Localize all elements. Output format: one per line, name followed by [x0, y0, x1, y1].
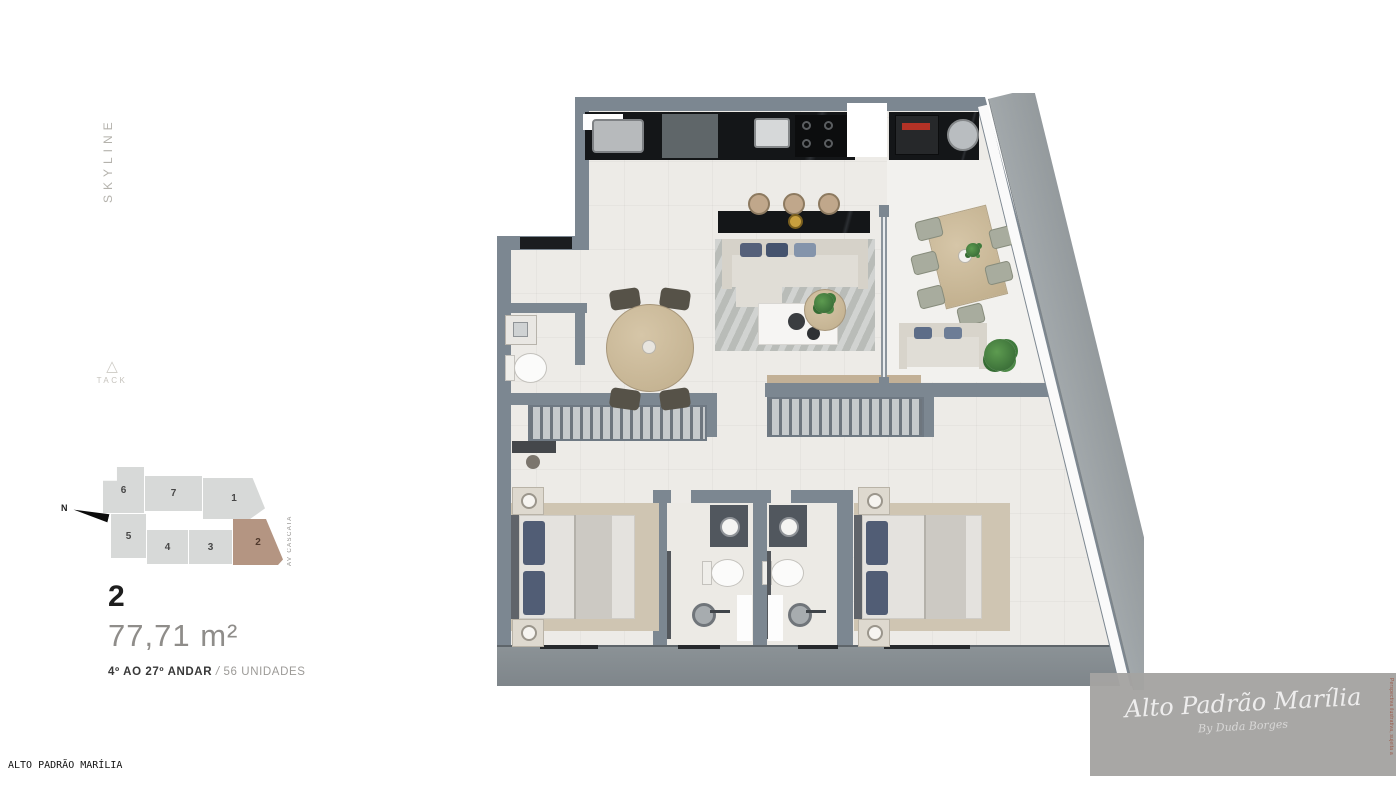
keyplan-unit-3-label: 3 — [208, 542, 214, 553]
bed-pillow — [866, 571, 888, 615]
desk — [512, 441, 556, 453]
bar-stool — [818, 193, 840, 215]
unit-area-value: 77,71 — [108, 618, 191, 653]
loveseat-armrest — [899, 323, 907, 369]
shower-glass — [667, 551, 671, 639]
window — [884, 645, 970, 649]
glass-partition — [881, 213, 887, 383]
burner-icon — [824, 139, 833, 148]
kitchen-cabinet — [662, 114, 718, 158]
bed-headboard — [511, 515, 519, 619]
wall-post — [879, 377, 889, 385]
oven — [895, 115, 939, 155]
lavabo-basin — [513, 322, 528, 337]
unit-area-unit: m² — [200, 618, 238, 653]
keyplan-unit-7: 7 — [145, 476, 202, 511]
disclaimer-vertical-text: Perspectiva ilustrativa, sujeita a alter… — [1387, 678, 1394, 772]
keyplan-unit-4: 4 — [147, 530, 188, 564]
street-label: AV CASCATA — [287, 494, 293, 566]
sink-bowl — [720, 517, 740, 537]
toilet — [514, 353, 547, 383]
lamp-icon — [867, 493, 883, 509]
wall-left — [497, 236, 511, 645]
separator: / — [216, 666, 220, 678]
floor-range: 4º AO 27º ANDAR — [108, 666, 212, 678]
burner-icon — [802, 121, 811, 130]
toilet — [711, 559, 744, 587]
wardrobe-closet — [767, 397, 924, 437]
unit-area: 77,71 m² — [108, 619, 368, 653]
window — [847, 103, 887, 157]
keyplan-unit-5: 5 — [111, 514, 146, 558]
compass-north-label: N — [61, 503, 68, 513]
wall-hall-right — [765, 383, 1050, 397]
sink-bowl — [779, 517, 799, 537]
wardrobe-closet — [528, 405, 707, 441]
kitchen-sink — [592, 119, 644, 153]
wall-top — [575, 97, 985, 111]
units-count: 56 UNIDADES — [224, 666, 306, 678]
lamp-icon — [521, 625, 537, 641]
decor-vase — [788, 313, 805, 330]
plant — [966, 243, 980, 257]
sofa-seat — [732, 255, 858, 287]
round-basin — [947, 119, 979, 151]
keyplan-unit-2-label: 2 — [255, 537, 261, 548]
loveseat-seat — [907, 337, 979, 367]
keyplan-unit-7-label: 7 — [171, 488, 177, 499]
watermark-block: Alto Padrão Marília By Duda Borges Persp… — [1090, 673, 1396, 776]
shower-arm — [806, 610, 826, 613]
shower-arm — [710, 610, 730, 613]
pillow — [794, 243, 816, 257]
shower-drain — [788, 603, 812, 627]
door-opening — [771, 490, 791, 503]
pillow — [766, 243, 788, 257]
balcony-slab — [497, 645, 1119, 688]
window — [798, 645, 838, 649]
unit-number: 2 — [108, 582, 368, 612]
burner-icon — [824, 121, 833, 130]
plant — [814, 293, 834, 313]
toilet — [771, 559, 804, 587]
bar-stool — [748, 193, 770, 215]
tack-triangle-icon: △ — [86, 360, 138, 374]
dining-chair — [609, 387, 641, 411]
window — [678, 645, 720, 649]
floor-plan — [492, 93, 1144, 690]
prep-sink — [754, 118, 790, 148]
bed-blanket — [574, 515, 612, 619]
site-name: ALTO PADRÃO MARÍLIA — [8, 760, 122, 771]
shower-drain — [692, 603, 716, 627]
keyplan-unit-6: 6 — [103, 467, 144, 513]
bed-pillow — [866, 521, 888, 565]
tack-logo: △ TACK — [86, 360, 138, 385]
window — [540, 645, 598, 649]
keyplan-unit-2-highlighted: 2 — [233, 519, 283, 565]
sofa-armrest — [722, 239, 732, 289]
bed-pillow — [523, 521, 545, 565]
keyplan-unit-5-label: 5 — [126, 531, 132, 542]
keyplan-unit-4-label: 4 — [165, 542, 171, 553]
keyplan-unit-3: 3 — [189, 530, 232, 564]
unit-info: 2 77,71 m² 4º AO 27º ANDAR / 56 UNIDADES — [108, 582, 368, 678]
bed-headboard — [854, 515, 862, 619]
entry-door-mat — [520, 237, 572, 249]
bar-stool — [783, 193, 805, 215]
keyplan-unit-1: 1 — [203, 478, 265, 519]
plant — [984, 339, 1016, 371]
pillow — [740, 243, 762, 257]
bathroom-door — [768, 595, 783, 641]
keyplan-unit-1-label: 1 — [231, 493, 237, 504]
pillow — [914, 327, 932, 339]
bathroom-door — [737, 595, 752, 641]
sofa-armrest — [858, 239, 868, 289]
wall-bath-right — [837, 490, 853, 645]
skyline-vertical-logo: SKYLINE — [96, 90, 120, 230]
keyplan-unit-6-label: 6 — [121, 485, 127, 496]
lamp-icon — [867, 625, 883, 641]
unit-floors-line: 4º AO 27º ANDAR / 56 UNIDADES — [108, 666, 368, 678]
bed-pillow — [523, 571, 545, 615]
wall-post — [879, 205, 889, 217]
pendant-light-icon — [788, 214, 803, 229]
site-key-plan: N 6 7 1 5 4 3 2 AV CASCATA — [60, 460, 312, 575]
door-opening — [671, 490, 691, 503]
lamp-icon — [521, 493, 537, 509]
burner-icon — [802, 139, 811, 148]
table-centerpiece — [642, 340, 656, 354]
oven-display — [902, 123, 930, 130]
console-shelf — [767, 375, 921, 383]
desk-chair — [526, 455, 540, 469]
wall-lavabo-right — [575, 303, 585, 365]
page: SKYLINE △ TACK N 6 7 1 5 4 3 2 AV CASCAT… — [0, 0, 1400, 786]
bed-blanket — [924, 515, 966, 619]
pillow — [944, 327, 962, 339]
dining-chair — [659, 387, 691, 411]
wall-lavabo-top — [497, 303, 587, 313]
tack-logo-text: TACK — [86, 376, 138, 385]
